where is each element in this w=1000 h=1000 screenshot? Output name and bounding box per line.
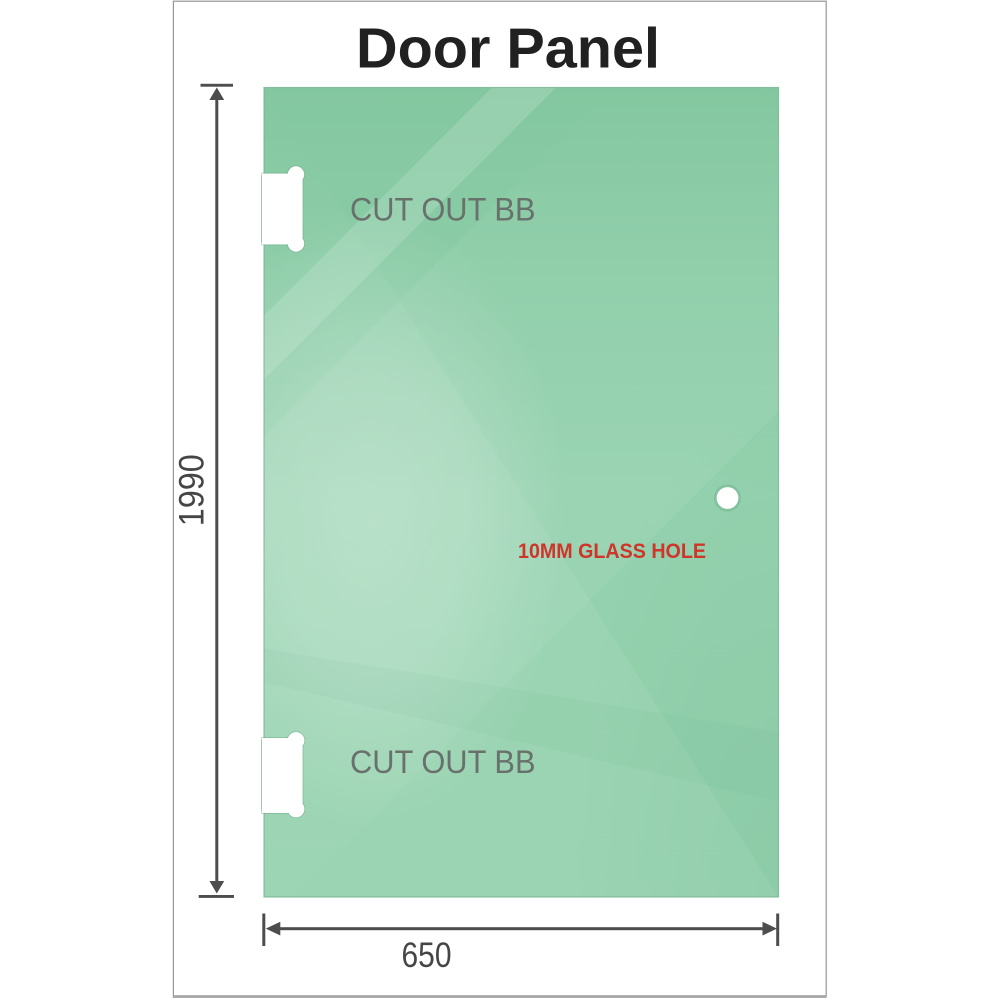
svg-text:1990: 1990 (173, 454, 212, 526)
svg-text:650: 650 (402, 936, 452, 975)
svg-text:Door Panel: Door Panel (356, 17, 660, 81)
svg-text:10MM GLASS HOLE: 10MM GLASS HOLE (518, 540, 706, 563)
svg-text:CUT OUT BB: CUT OUT BB (350, 191, 536, 227)
svg-text:CUT OUT BB: CUT OUT BB (350, 744, 536, 780)
